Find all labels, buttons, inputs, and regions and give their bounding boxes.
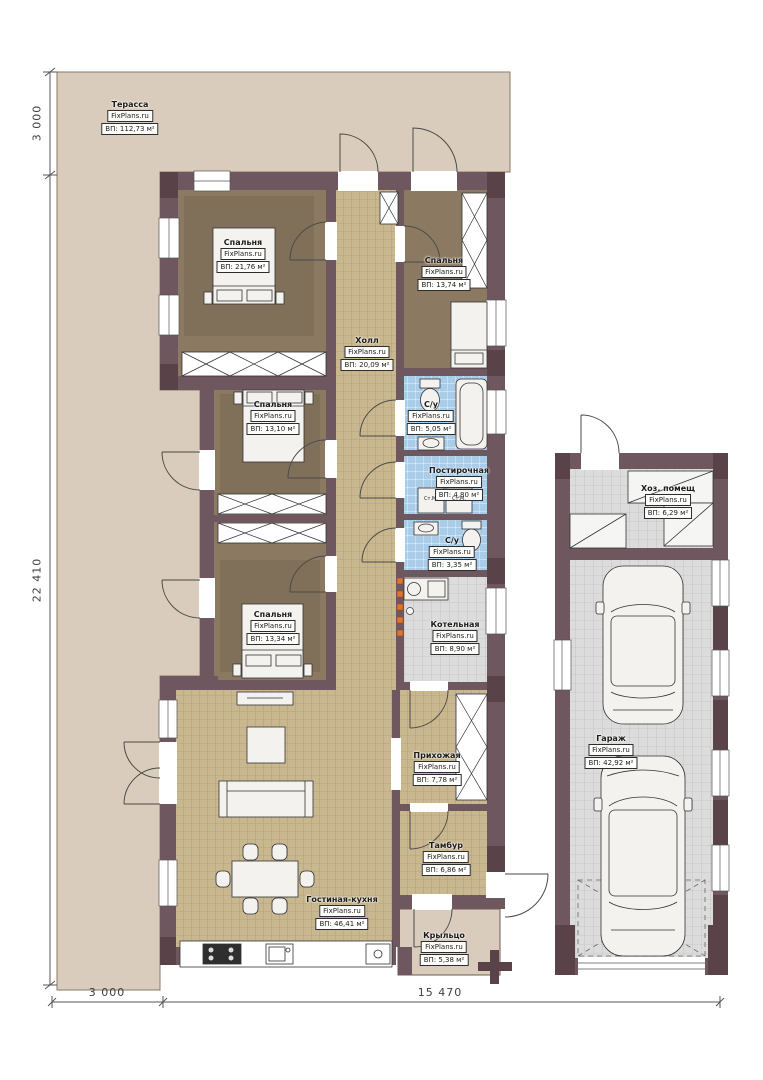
car-icon xyxy=(596,566,690,724)
wardrobe-icon xyxy=(462,193,487,288)
bathtub-icon xyxy=(456,379,487,449)
wardrobe-icon xyxy=(456,694,487,800)
floor-drain-icon xyxy=(407,608,414,615)
floor-plan-canvas xyxy=(0,0,763,1080)
window xyxy=(486,390,506,434)
floor-hall xyxy=(336,190,396,690)
wardrobe-icon xyxy=(182,352,326,376)
door-arc xyxy=(581,415,619,453)
wardrobe-icon xyxy=(218,494,326,514)
sink-icon xyxy=(414,522,438,535)
window xyxy=(159,218,179,258)
garage-gate xyxy=(578,957,705,976)
window xyxy=(712,560,729,606)
toilet-icon xyxy=(462,521,481,551)
window xyxy=(194,171,230,191)
window xyxy=(712,750,729,796)
floor-plan-page: Терасса FixPlans.ru ВП: 112,73 м² Спальн… xyxy=(0,0,763,1080)
window xyxy=(712,650,729,696)
door-arc xyxy=(505,874,548,917)
bed-icon xyxy=(233,604,312,678)
window xyxy=(159,860,177,906)
bed-icon xyxy=(234,390,313,462)
window xyxy=(486,300,506,346)
bed-icon xyxy=(204,228,284,304)
window xyxy=(159,700,177,738)
car-icon xyxy=(594,756,692,956)
bed-icon xyxy=(451,302,487,368)
kitchen-counter-icon xyxy=(180,941,392,967)
window xyxy=(486,588,506,634)
floor-laundry xyxy=(404,456,487,514)
tv-stand-icon xyxy=(237,692,293,705)
window xyxy=(554,640,571,690)
window xyxy=(159,295,179,335)
floor-vestibule xyxy=(400,811,487,895)
sink-icon xyxy=(418,437,444,450)
toilet-icon xyxy=(420,379,440,412)
boiler-unit-icon xyxy=(404,578,448,600)
wardrobe-icon xyxy=(218,523,326,543)
window xyxy=(712,845,729,891)
closet-icon xyxy=(380,192,398,224)
coffee-table-icon xyxy=(247,727,285,763)
sofa-icon xyxy=(219,781,313,817)
